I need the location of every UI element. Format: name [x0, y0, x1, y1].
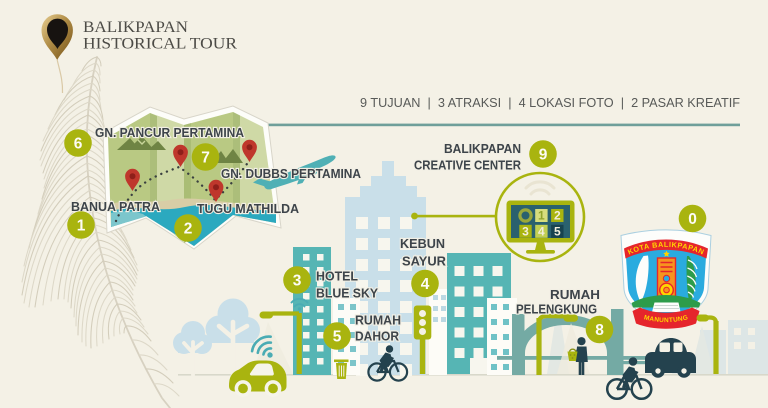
svg-text:RUMAH: RUMAH — [355, 313, 401, 328]
svg-text:4: 4 — [421, 276, 430, 293]
svg-text:5: 5 — [333, 329, 342, 346]
svg-text:5: 5 — [554, 224, 561, 238]
svg-text:9 TUJUAN | 3 ATRAKSI | 4 L: 9 TUJUAN | 3 ATRAKSI | 4 LOKASI FOTO | 2… — [360, 95, 740, 110]
svg-text:1: 1 — [77, 218, 86, 235]
svg-text:HISTORICAL TOUR: HISTORICAL TOUR — [83, 36, 238, 53]
svg-text:7: 7 — [201, 150, 210, 167]
svg-text:PELENGKUNG: PELENGKUNG — [516, 302, 597, 317]
svg-text:TUGU MATHILDA: TUGU MATHILDA — [197, 201, 300, 216]
svg-text:9: 9 — [539, 147, 548, 164]
svg-text:BALIKPAPAN: BALIKPAPAN — [444, 141, 521, 156]
svg-text:HOTEL: HOTEL — [316, 269, 358, 284]
svg-text:SAYUR: SAYUR — [402, 254, 447, 269]
svg-text:DAHOR: DAHOR — [355, 329, 400, 344]
svg-text:3: 3 — [293, 273, 302, 290]
svg-text:1: 1 — [538, 209, 545, 223]
svg-text:RUMAH: RUMAH — [550, 287, 600, 302]
svg-text:2: 2 — [184, 221, 193, 238]
svg-text:BLUE SKY: BLUE SKY — [316, 286, 378, 301]
svg-text:4: 4 — [538, 224, 545, 238]
svg-text:2: 2 — [554, 209, 561, 223]
svg-text:0: 0 — [688, 211, 697, 228]
svg-text:3: 3 — [522, 224, 529, 238]
svg-text:BALIKPAPAN: BALIKPAPAN — [83, 19, 188, 36]
svg-text:GN. DUBBS PERTAMINA: GN. DUBBS PERTAMINA — [221, 166, 362, 181]
svg-text:KEBUN: KEBUN — [400, 236, 445, 251]
svg-text:GN. PANCUR PERTAMINA: GN. PANCUR PERTAMINA — [95, 125, 245, 140]
svg-text:6: 6 — [74, 136, 83, 153]
svg-text:CREATIVE CENTER: CREATIVE CENTER — [414, 158, 522, 173]
svg-text:8: 8 — [595, 322, 604, 339]
